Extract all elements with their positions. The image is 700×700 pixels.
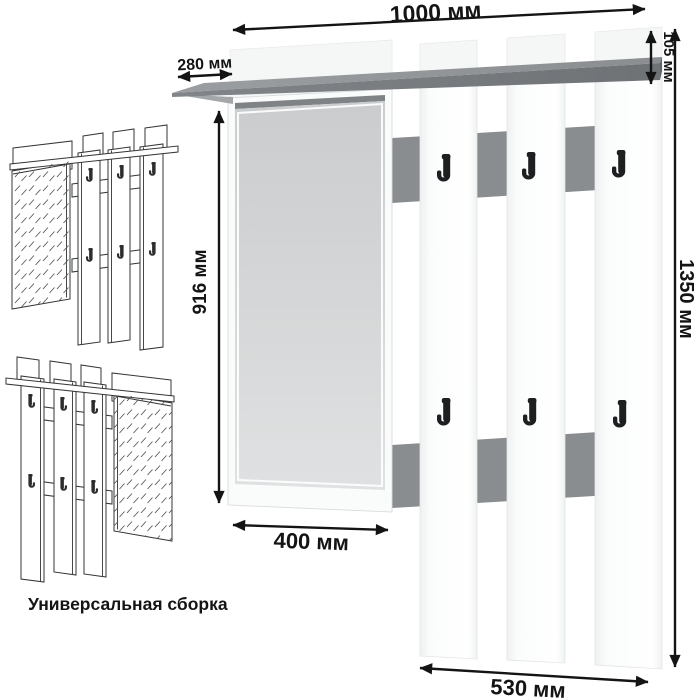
slat-3 <box>595 66 662 669</box>
mirror <box>228 89 392 512</box>
sketch-mirror-hatch <box>114 393 172 541</box>
dim-hook-panel-width-label: 530 мм <box>490 674 567 700</box>
product-diagram-canvas: Универсальная сборка <box>0 0 700 700</box>
dim-mirror-height-label: 916 мм <box>190 249 211 314</box>
main-drawing <box>172 27 662 669</box>
dim-total-width-label: 1000 мм <box>389 0 482 27</box>
caption-universal-assembly: Универсальная сборка <box>28 594 228 614</box>
sketch-mirror-hatch <box>12 161 70 309</box>
dimension-mirror-height: 916 мм <box>190 111 219 503</box>
slat-2 <box>507 72 565 663</box>
dimension-total-height: 1350 мм <box>675 29 697 667</box>
mirror-glass <box>235 101 385 490</box>
assembly-sketch-mirror-left <box>10 125 178 350</box>
product-image: Универсальная сборка <box>0 0 700 700</box>
assembly-sketch-mirror-right <box>6 357 174 582</box>
dimension-shelf-depth: 280 мм <box>177 55 233 77</box>
dim-total-height-label: 1350 мм <box>675 259 697 339</box>
dimension-mirror-width: 400 мм <box>233 525 388 555</box>
dimension-total-width: 1000 мм <box>233 0 645 30</box>
slats <box>420 66 662 669</box>
dim-mirror-width-label: 400 мм <box>273 528 349 556</box>
dimension-hook-panel-width: 530 мм <box>420 668 648 700</box>
dimension-arrow <box>178 74 232 77</box>
dim-shelf-depth-label: 280 мм <box>177 55 233 75</box>
